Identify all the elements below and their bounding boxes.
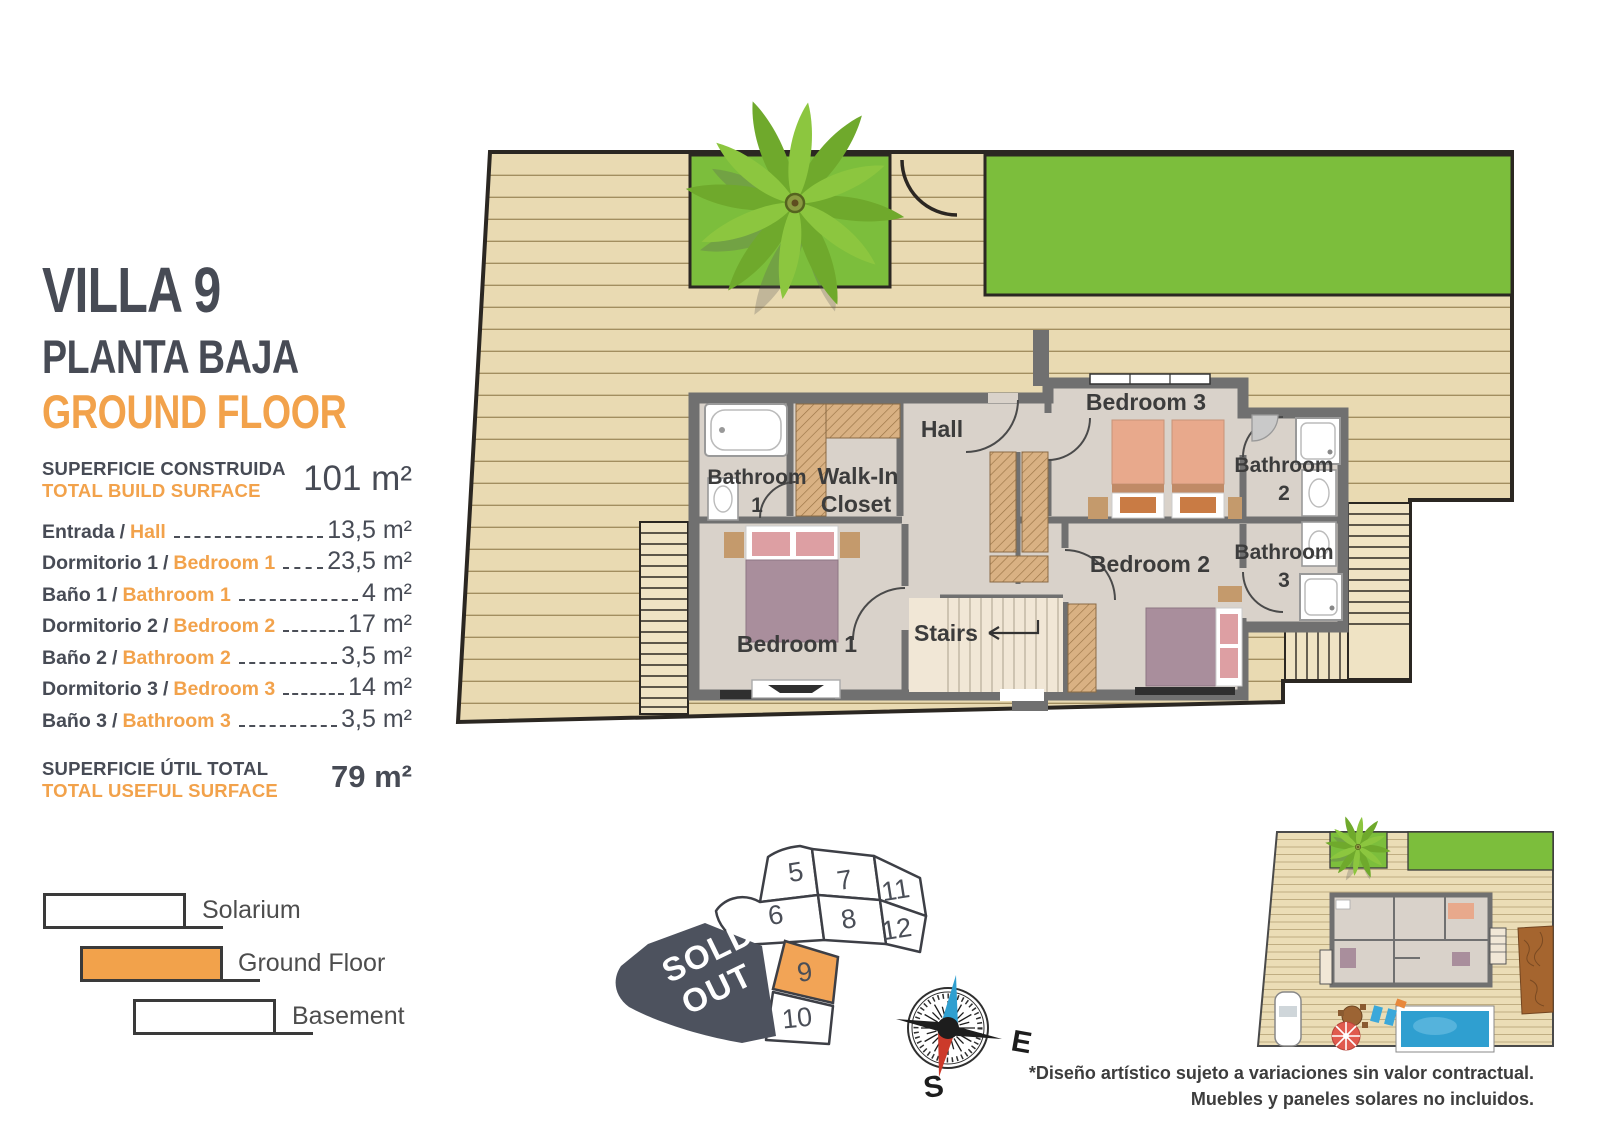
disclaimer-line-2: Muebles y paneles solares no incluidos. bbox=[1029, 1086, 1534, 1112]
door-gap-hall bbox=[988, 393, 1018, 403]
label-bathroom2-1: Bathroom bbox=[1234, 454, 1333, 477]
mini-car bbox=[1275, 992, 1301, 1046]
label-bedroom2: Bedroom 2 bbox=[1090, 551, 1210, 577]
plot-number-12: 12 bbox=[879, 912, 913, 946]
compass: E S bbox=[896, 975, 1034, 1105]
plot-number-10: 10 bbox=[781, 1002, 814, 1035]
bedroom2-wardrobe bbox=[1068, 604, 1096, 692]
mini-dirt-area bbox=[1518, 926, 1553, 1014]
label-bathroom1-1: Bathroom bbox=[707, 466, 806, 489]
bathtub bbox=[705, 404, 787, 456]
label-bedroom1: Bedroom 1 bbox=[737, 631, 857, 657]
plan-graphics: Hall Walk-In Closet Bathroom 1 Bedroom 3… bbox=[0, 0, 1600, 1131]
mini-umbrella bbox=[1332, 1022, 1360, 1050]
door-gap-entry bbox=[1000, 689, 1044, 701]
mini-pool bbox=[1396, 1006, 1494, 1052]
plot-number-11: 11 bbox=[879, 873, 911, 907]
brochure-page: VILLA 9 PLANTA BAJA GROUND FLOOR SUPERFI… bbox=[0, 0, 1600, 1131]
label-stairs: Stairs bbox=[914, 620, 978, 646]
label-bathroom1-2: 1 bbox=[751, 494, 763, 517]
label-walk-in-2: Closet bbox=[821, 491, 892, 517]
label-walk-in-1: Walk-In bbox=[818, 463, 899, 489]
disclaimer-line-1: *Diseño artístico sujeto a variaciones s… bbox=[1029, 1060, 1534, 1086]
disclaimer: *Diseño artístico sujeto a variaciones s… bbox=[1029, 1060, 1534, 1112]
wall-stub-north bbox=[1033, 330, 1049, 386]
label-bathroom3-1: Bathroom bbox=[1234, 541, 1333, 564]
label-bathroom3-2: 3 bbox=[1278, 569, 1290, 592]
mini-site-plan bbox=[1258, 815, 1553, 1052]
label-bedroom3: Bedroom 3 bbox=[1086, 389, 1206, 415]
bedroom1-dresser bbox=[752, 680, 840, 698]
exterior-steps-left bbox=[640, 522, 688, 714]
mini-lawn-right bbox=[1408, 832, 1553, 870]
label-bathroom2-2: 2 bbox=[1278, 482, 1290, 505]
compass-east-label: E bbox=[1009, 1024, 1034, 1060]
window-bedroom2 bbox=[1135, 687, 1235, 695]
window-bedroom3 bbox=[1090, 374, 1210, 384]
lawn-right bbox=[985, 155, 1512, 295]
shower-bathroom3 bbox=[1300, 574, 1342, 620]
label-hall: Hall bbox=[921, 416, 963, 442]
compass-south-label: S bbox=[921, 1069, 945, 1104]
mini-house bbox=[1320, 895, 1506, 985]
plot-availability-map: SOLD OUT 5 7 11 6 8 12 9 10 bbox=[616, 846, 926, 1044]
floor-plan: Hall Walk-In Closet Bathroom 1 Bedroom 3… bbox=[458, 97, 1512, 722]
